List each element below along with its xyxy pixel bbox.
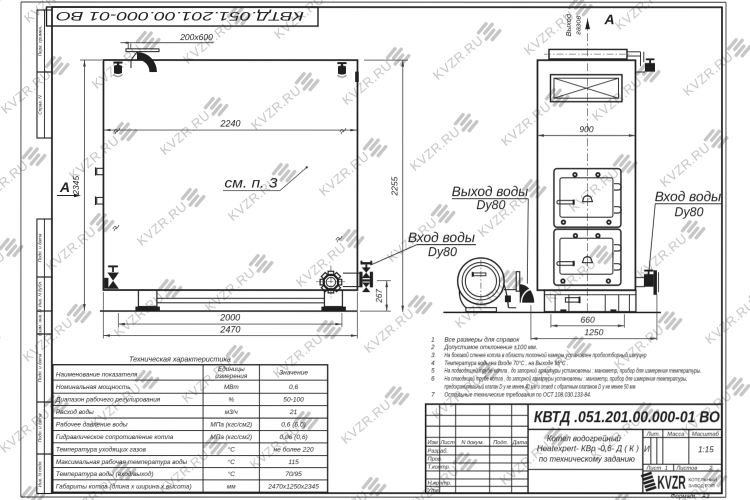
svg-text:3: 3 (431, 352, 435, 359)
svg-text:Гидравлическое сопротивление к: Гидравлическое сопротивление котла (56, 433, 174, 441)
svg-text:КВТД.051.201.00.000-01 ВО: КВТД.051.201.00.000-01 ВО (56, 9, 304, 21)
svg-text:KVZR.RU: KVZR.RU (20, 314, 76, 364)
svg-text:Остальные технические требован: Остальные технические требования по ОСТ … (444, 391, 591, 398)
svg-text:Heatexpert- КВр -0,6- Д ( К ): Heatexpert- КВр -0,6- Д ( К ) (537, 444, 639, 453)
svg-text:267: 267 (375, 289, 384, 304)
svg-text:660: 660 (581, 315, 595, 325)
svg-text:МПа (кгс/см2): МПа (кгс/см2) (210, 434, 252, 441)
svg-text:Максимальная рабочая температу: Максимальная рабочая температура воды (56, 458, 188, 466)
svg-text:На подводящей трубе котла ,: На подводящей трубе котла , до запорной … (444, 368, 701, 375)
svg-text:ЗАВОД РЭП: ЗАВОД РЭП (688, 483, 714, 488)
svg-text:предохранительный клапан D у: предохранительный клапан D у не менее 40… (444, 384, 636, 391)
svg-text:Dy80: Dy80 (674, 204, 704, 219)
svg-text:KVZR.RU: KVZR.RU (293, 239, 349, 289)
svg-text:МПа (кгс/см2): МПа (кгс/см2) (210, 422, 252, 429)
svg-text:70/95: 70/95 (285, 471, 302, 478)
svg-text:Взам. инв. N: Взам. инв. N (37, 308, 42, 335)
svg-text:5: 5 (431, 368, 435, 375)
svg-text:Масштаб: Масштаб (692, 432, 720, 438)
svg-text:KVZR.RU: KVZR.RU (111, 289, 167, 339)
svg-text:KVZR.RU: KVZR.RU (338, 396, 394, 446)
svg-text:Подп. и дата: Подп. и дата (37, 413, 42, 442)
svg-text:KVZR.RU: KVZR.RU (0, 405, 53, 455)
svg-text:Выход: Выход (564, 14, 573, 37)
svg-text:измерения: измерения (215, 373, 248, 380)
svg-text:900: 900 (579, 124, 593, 134)
svg-text:1: 1 (431, 336, 434, 343)
svg-text:Т.контр.: Т.контр. (428, 465, 451, 471)
svg-text:°С: °С (228, 458, 236, 466)
svg-text:KVZR: KVZR (657, 472, 686, 493)
svg-text:МВт: МВт (224, 384, 240, 391)
svg-text:2255: 2255 (389, 176, 399, 196)
svg-text:200x600: 200x600 (179, 32, 213, 42)
svg-text:KVZR.RU: KVZR.RU (452, 281, 508, 331)
svg-text:KVZR.RU: KVZR.RU (634, 231, 690, 281)
svg-text:Масса: Масса (667, 432, 685, 438)
svg-text:KVZR.RU: KVZR.RU (0, 66, 54, 116)
svg-text:Листов: Листов (675, 466, 697, 472)
svg-text:2470: 2470 (219, 324, 240, 334)
svg-text:115: 115 (288, 459, 299, 466)
svg-text:°С: °С (228, 445, 236, 453)
svg-text:не более 220: не более 220 (273, 445, 314, 453)
svg-text:Наименование показателя: Наименование показателя (56, 372, 138, 379)
svg-text:Лист: Лист (439, 440, 455, 446)
svg-text:50-100: 50-100 (283, 397, 304, 404)
svg-text:Формат: Формат (671, 493, 696, 500)
svg-text:KVZR.RU: KVZR.RU (0, 157, 31, 207)
svg-text:Инв. N подл.: Инв. N подл. (37, 460, 42, 487)
svg-text:Dy80: Dy80 (476, 197, 506, 212)
svg-text:Подп. и дата: Подп. и дата (37, 233, 42, 262)
svg-text:газов: газов (573, 16, 582, 35)
svg-text:Котел водогрейный: Котел водогрейный (547, 434, 621, 443)
svg-text:Допустимое отклонение ±100 мм: Допустимое отклонение ±100 мм. (443, 344, 537, 351)
svg-text:1:15: 1:15 (698, 445, 714, 454)
svg-text:Dy80: Dy80 (428, 244, 458, 259)
svg-text:KVZR.RU: KVZR.RU (589, 74, 645, 124)
svg-text:по техническому заданию: по техническому заданию (539, 454, 635, 463)
svg-text:KVZR.RU: KVZR.RU (248, 82, 304, 132)
svg-text:Единицы: Единицы (218, 365, 245, 373)
svg-text:KVZR.RU: KVZR.RU (657, 140, 713, 190)
svg-text:мм: мм (227, 483, 236, 490)
svg-text:2000: 2000 (219, 313, 240, 323)
svg-text:KVZR.RU: KVZR.RU (66, 132, 122, 182)
svg-text:КОТЕЛЬНЫЙ: КОТЕЛЬНЫЙ (688, 475, 717, 482)
svg-text:Вход воды: Вход воды (655, 189, 722, 204)
svg-text:Перв. примен.: Перв. примен. (37, 26, 42, 57)
svg-text:Диапазон рабочего регулировани: Диапазон рабочего регулирования (55, 396, 161, 404)
svg-text:Значение: Значение (279, 370, 308, 377)
svg-text:KVZR.RU: KVZR.RU (134, 198, 190, 248)
svg-text:7: 7 (431, 391, 435, 398)
svg-text:°С: °С (228, 470, 236, 478)
svg-text:Рабочее давление воды: Рабочее давление воды (56, 421, 128, 429)
svg-text:KVZR.RU: KVZR.RU (612, 0, 668, 33)
svg-text:Справ. N: Справ. N (37, 95, 42, 115)
svg-text:Н.контр.: Н.контр. (428, 481, 452, 487)
svg-text:Номинальная мощность: Номинальная мощность (56, 384, 131, 391)
svg-text:см. п. 3: см. п. 3 (224, 175, 277, 191)
svg-text:21: 21 (289, 409, 298, 416)
svg-text:0,06 (0,6): 0,06 (0,6) (279, 434, 307, 441)
svg-text:%: % (228, 397, 234, 404)
svg-text:Техническая характеристика: Техническая характеристика (129, 355, 231, 364)
svg-text:KVZR.RU: KVZR.RU (680, 49, 736, 99)
svg-text:KVZR.RU: KVZR.RU (498, 99, 554, 149)
svg-text:Расход воды: Расход воды (56, 408, 94, 416)
svg-text:N докум.: N докум. (461, 440, 484, 446)
svg-text:А: А (59, 179, 70, 195)
svg-text:Дата: Дата (511, 440, 527, 446)
svg-text:А: А (603, 11, 614, 27)
svg-text:Температура воды (вход/выход): Температура воды (вход/выход) (56, 470, 154, 478)
svg-text:KVZR.RU: KVZR.RU (316, 148, 372, 198)
svg-text:KVZR.RU: KVZR.RU (430, 33, 486, 83)
svg-text:KVZR.RU: KVZR.RU (157, 107, 213, 157)
svg-text:Габариты котла (длина х ширина: Габариты котла (длина х ширина х высота) (56, 482, 192, 490)
svg-text:6: 6 (431, 376, 435, 383)
svg-text:Разраб.: Разраб. (428, 449, 448, 455)
svg-text:1: 1 (665, 466, 668, 472)
svg-text:Температура воды на Входе 70°: Температура воды на Входе 70°С , на Выхо… (444, 360, 568, 367)
svg-text:2470х1250х2345: 2470х1250х2345 (267, 483, 319, 490)
svg-text:Подп.: Подп. (493, 440, 508, 446)
svg-text:Изм: Изм (427, 440, 438, 446)
svg-text:Лит.: Лит. (646, 432, 661, 438)
svg-text:м3/ч: м3/ч (225, 409, 239, 416)
svg-text:Температура уходящих газов: Температура уходящих газов (56, 445, 147, 453)
svg-text:Пров.: Пров. (428, 457, 443, 463)
svg-text:На отводящей трубе котла , до: На отводящей трубе котла , до запорной а… (444, 376, 687, 383)
svg-text:KVZR.RU: KVZR.RU (361, 305, 417, 355)
svg-text:KVZR.RU: KVZR.RU (611, 322, 667, 372)
svg-text:КВТД .051.201.00.000-01 ВО: КВТД .051.201.00.000-01 ВО (534, 409, 720, 426)
svg-text:0,6: 0,6 (289, 384, 299, 391)
svg-text:KVZR.RU: KVZR.RU (339, 57, 395, 107)
svg-text:Все размеры для справок: Все размеры для справок (444, 336, 520, 343)
svg-text:2240: 2240 (219, 119, 240, 129)
svg-text:KVZR.RU: KVZR.RU (407, 124, 463, 174)
svg-text:На боковой стенке котла в обла: На боковой стенке котла в области топочн… (444, 352, 646, 359)
svg-text:Утв.: Утв. (427, 488, 441, 494)
svg-text:4: 4 (431, 360, 435, 367)
svg-text:1250: 1250 (584, 327, 603, 337)
svg-text:Подп. и дата: Подп. и дата (37, 353, 42, 382)
svg-text:Вход воды: Вход воды (408, 230, 475, 245)
svg-text:Лист: Лист (645, 466, 661, 472)
svg-text:2345: 2345 (71, 176, 81, 196)
svg-text:2: 2 (430, 344, 435, 351)
svg-text:И: И (644, 445, 650, 454)
svg-text:Инв. N дубл.: Инв. N дубл. (37, 281, 42, 308)
svg-text:0,6 (6,0): 0,6 (6,0) (281, 422, 306, 429)
svg-text:А3: А3 (701, 493, 710, 500)
